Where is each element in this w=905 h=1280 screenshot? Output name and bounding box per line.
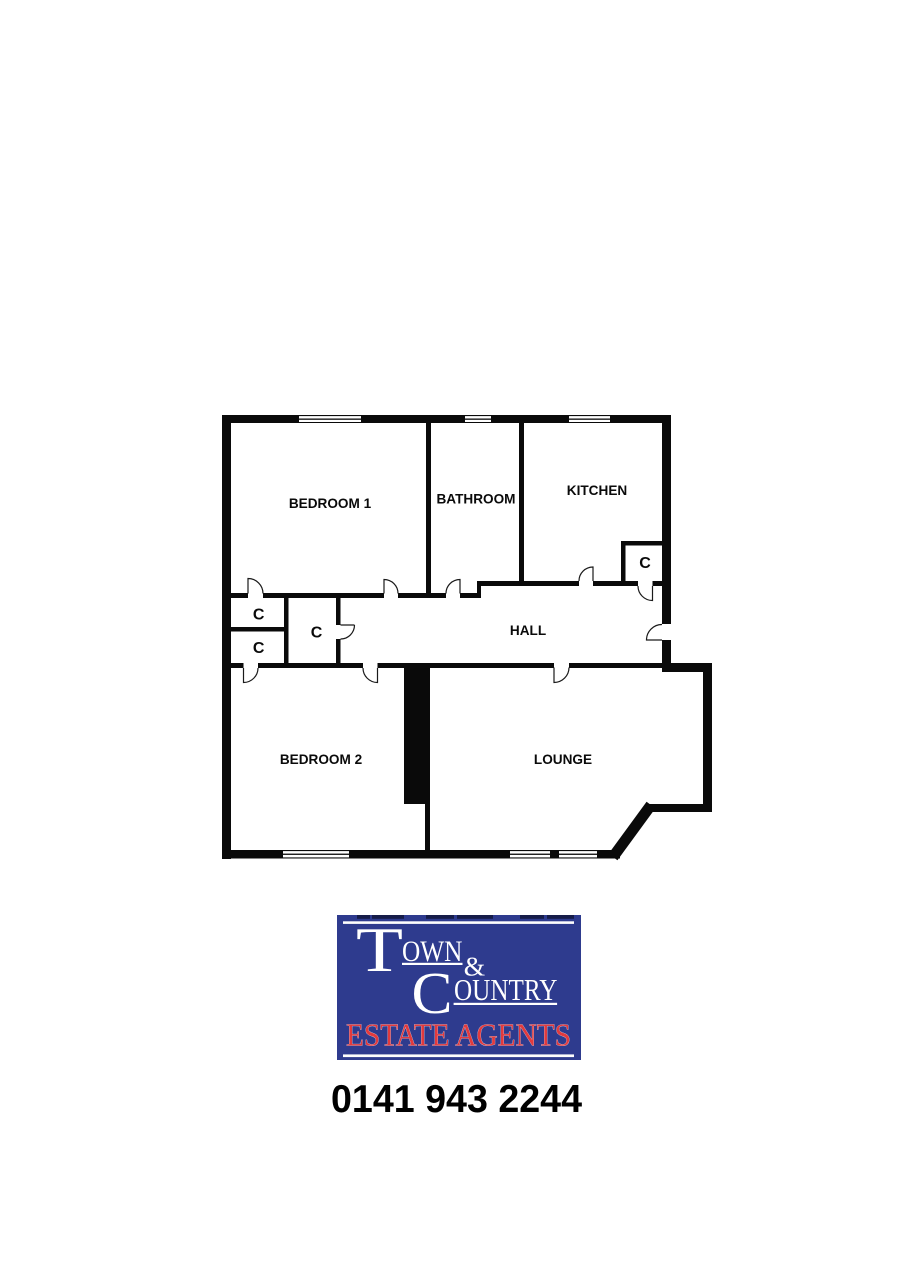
svg-text:BATHROOM: BATHROOM [436,492,515,507]
svg-text:C: C [253,606,265,623]
svg-text:0141 943 2244: 0141 943 2244 [331,1078,582,1121]
svg-text:KITCHEN: KITCHEN [567,483,627,498]
svg-text:C: C [639,555,651,572]
svg-text:BEDROOM 1: BEDROOM 1 [289,496,372,511]
svg-text:LOUNGE: LOUNGE [534,752,592,767]
svg-text:BEDROOM 2: BEDROOM 2 [280,752,363,767]
svg-text:OUNTRY: OUNTRY [454,972,557,1007]
svg-text:T: T [356,915,403,985]
svg-text:C: C [311,624,323,641]
svg-text:ESTATE AGENTS: ESTATE AGENTS [346,1017,571,1052]
svg-text:C: C [412,960,453,1026]
svg-text:HALL: HALL [510,623,546,638]
svg-text:C: C [253,640,265,657]
